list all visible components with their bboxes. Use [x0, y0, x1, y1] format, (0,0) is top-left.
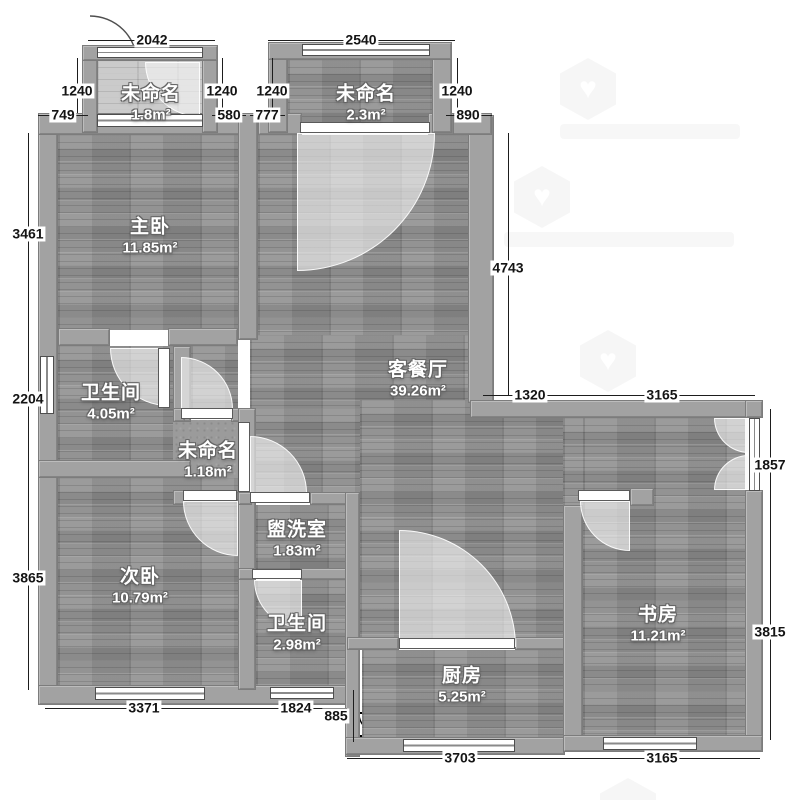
wall — [745, 400, 763, 418]
floor-washroom — [256, 505, 346, 570]
dimension-label: 3371 — [126, 701, 161, 716]
wall — [58, 328, 110, 346]
dimension-label: 3165 — [644, 751, 679, 766]
window — [270, 687, 334, 699]
door-leaf — [252, 569, 302, 579]
dimension-label: 749 — [49, 108, 76, 123]
floor-balcony-top-middle — [288, 60, 432, 123]
dimension-label: 2540 — [343, 33, 378, 48]
wall — [347, 637, 399, 650]
window — [95, 687, 205, 700]
dimension-label: 4743 — [490, 261, 525, 276]
window — [97, 47, 203, 58]
dimension-label: 890 — [454, 108, 481, 123]
dimension-label: 3461 — [10, 227, 45, 242]
wall — [468, 115, 494, 403]
door-leaf — [183, 490, 237, 501]
dimension-line — [28, 133, 29, 690]
dimension-line — [353, 690, 354, 742]
wall — [238, 113, 258, 340]
wall — [630, 488, 654, 506]
wall — [745, 490, 763, 752]
floor-plan: ♥ ♥ ♥ ♥ 未命名1.8m²未命名2.3m²主卧11.85m²客餐厅39.2… — [0, 0, 800, 800]
dimension-label: 580 — [215, 108, 242, 123]
door-leaf — [300, 122, 430, 133]
door-leaf — [181, 408, 233, 419]
wall — [470, 400, 763, 418]
watermark-logo: ♥ — [560, 58, 616, 120]
dimension-label: 3165 — [644, 388, 679, 403]
window — [603, 737, 697, 750]
dimension-label: 1240 — [439, 84, 474, 99]
dimension-label: 2042 — [134, 33, 169, 48]
window — [749, 418, 760, 491]
dimension-label: 3865 — [10, 571, 45, 586]
dimension-label: 3815 — [752, 625, 787, 640]
door-leaf — [238, 422, 250, 492]
window — [97, 114, 203, 127]
dimension-label: 777 — [253, 108, 280, 123]
watermark-logo: ♥ — [580, 330, 636, 392]
wall — [168, 328, 238, 346]
wall — [515, 637, 565, 650]
wall — [38, 460, 191, 478]
dimension-line — [347, 758, 760, 759]
dimension-label: 885 — [322, 709, 349, 724]
dimension-label: 1240 — [59, 84, 94, 99]
door-leaf — [158, 348, 170, 408]
watermark-logo: ♥ — [514, 166, 570, 228]
floor-study — [583, 418, 745, 737]
door-leaf — [399, 638, 515, 649]
floor-kitchen — [362, 650, 565, 739]
dimension-label: 3703 — [442, 751, 477, 766]
dimension-label: 2204 — [10, 392, 45, 407]
dimension-label: 1320 — [512, 388, 547, 403]
door-leaf — [578, 490, 630, 501]
dimension-label: 1240 — [254, 84, 289, 99]
watermark-logo: ♥ — [600, 778, 656, 800]
wall — [563, 505, 583, 737]
dimension-label: 1824 — [278, 701, 313, 716]
dimension-label: 1857 — [752, 458, 787, 473]
dimension-label: 1240 — [204, 84, 239, 99]
door-leaf — [250, 492, 310, 503]
floor-master-bedroom — [58, 135, 238, 330]
